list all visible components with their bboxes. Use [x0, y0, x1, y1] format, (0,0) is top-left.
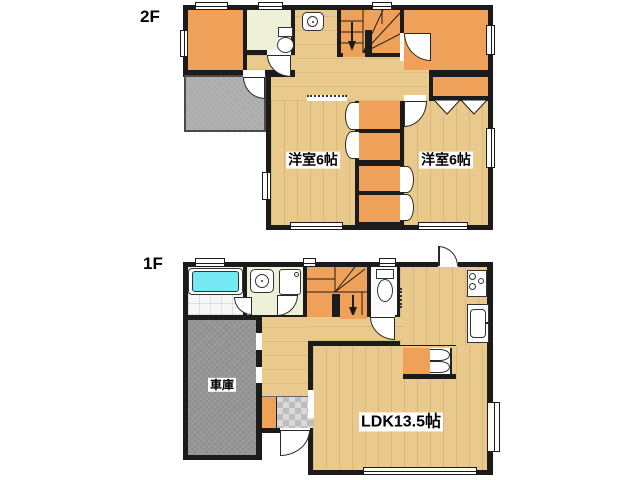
opening-1f-ldk-left	[308, 390, 314, 418]
gap-1f-garage-1	[256, 333, 262, 350]
label-garage: 車庫	[208, 378, 236, 392]
toilet-1f-bowl	[377, 279, 393, 302]
washroom-faucet	[294, 272, 299, 277]
ldk-floor-right	[456, 345, 487, 470]
stove-burner-1	[469, 273, 476, 280]
closet-1f-bottom-wall	[403, 374, 456, 379]
kitchen-sink	[470, 309, 486, 338]
door-1f-backdoor	[438, 246, 458, 266]
floor-1f-label: 1F	[143, 254, 163, 274]
opening-1f-kitchen-dashed	[400, 288, 402, 308]
bifold-1f-closet-1	[430, 349, 450, 361]
window-1f-toilet	[379, 258, 396, 267]
label-ldk: LDK13.5帖	[359, 412, 443, 431]
door-1f-backdoor-leaf	[438, 246, 440, 266]
kitchen-faucet	[485, 322, 491, 324]
bifold-1f-closet-2	[430, 361, 450, 373]
hall-1f-dk-opening	[395, 318, 403, 341]
stairs-1f	[307, 267, 367, 317]
toilet-1f-tank	[376, 269, 394, 279]
stove-burner-2	[469, 283, 476, 290]
washing-machine-dot	[261, 280, 263, 282]
floor-1f: 1F	[0, 0, 640, 480]
floorplan-canvas: 2F	[0, 0, 640, 480]
stairs-1f-exit	[340, 315, 367, 319]
gap-1f-garage-2	[256, 367, 262, 383]
hall-1f-corridor	[262, 317, 308, 398]
shoe-closet	[262, 396, 277, 428]
window-1f-ldk-bottom	[363, 467, 477, 475]
entrance-step-line	[262, 396, 313, 397]
bathtub	[192, 271, 239, 292]
window-1f-bath	[195, 258, 225, 267]
bay-window-ldk	[487, 402, 500, 452]
window-1f-wash	[303, 258, 316, 267]
closet-1f-ldk	[403, 348, 430, 374]
stove-burner-3	[478, 278, 484, 284]
